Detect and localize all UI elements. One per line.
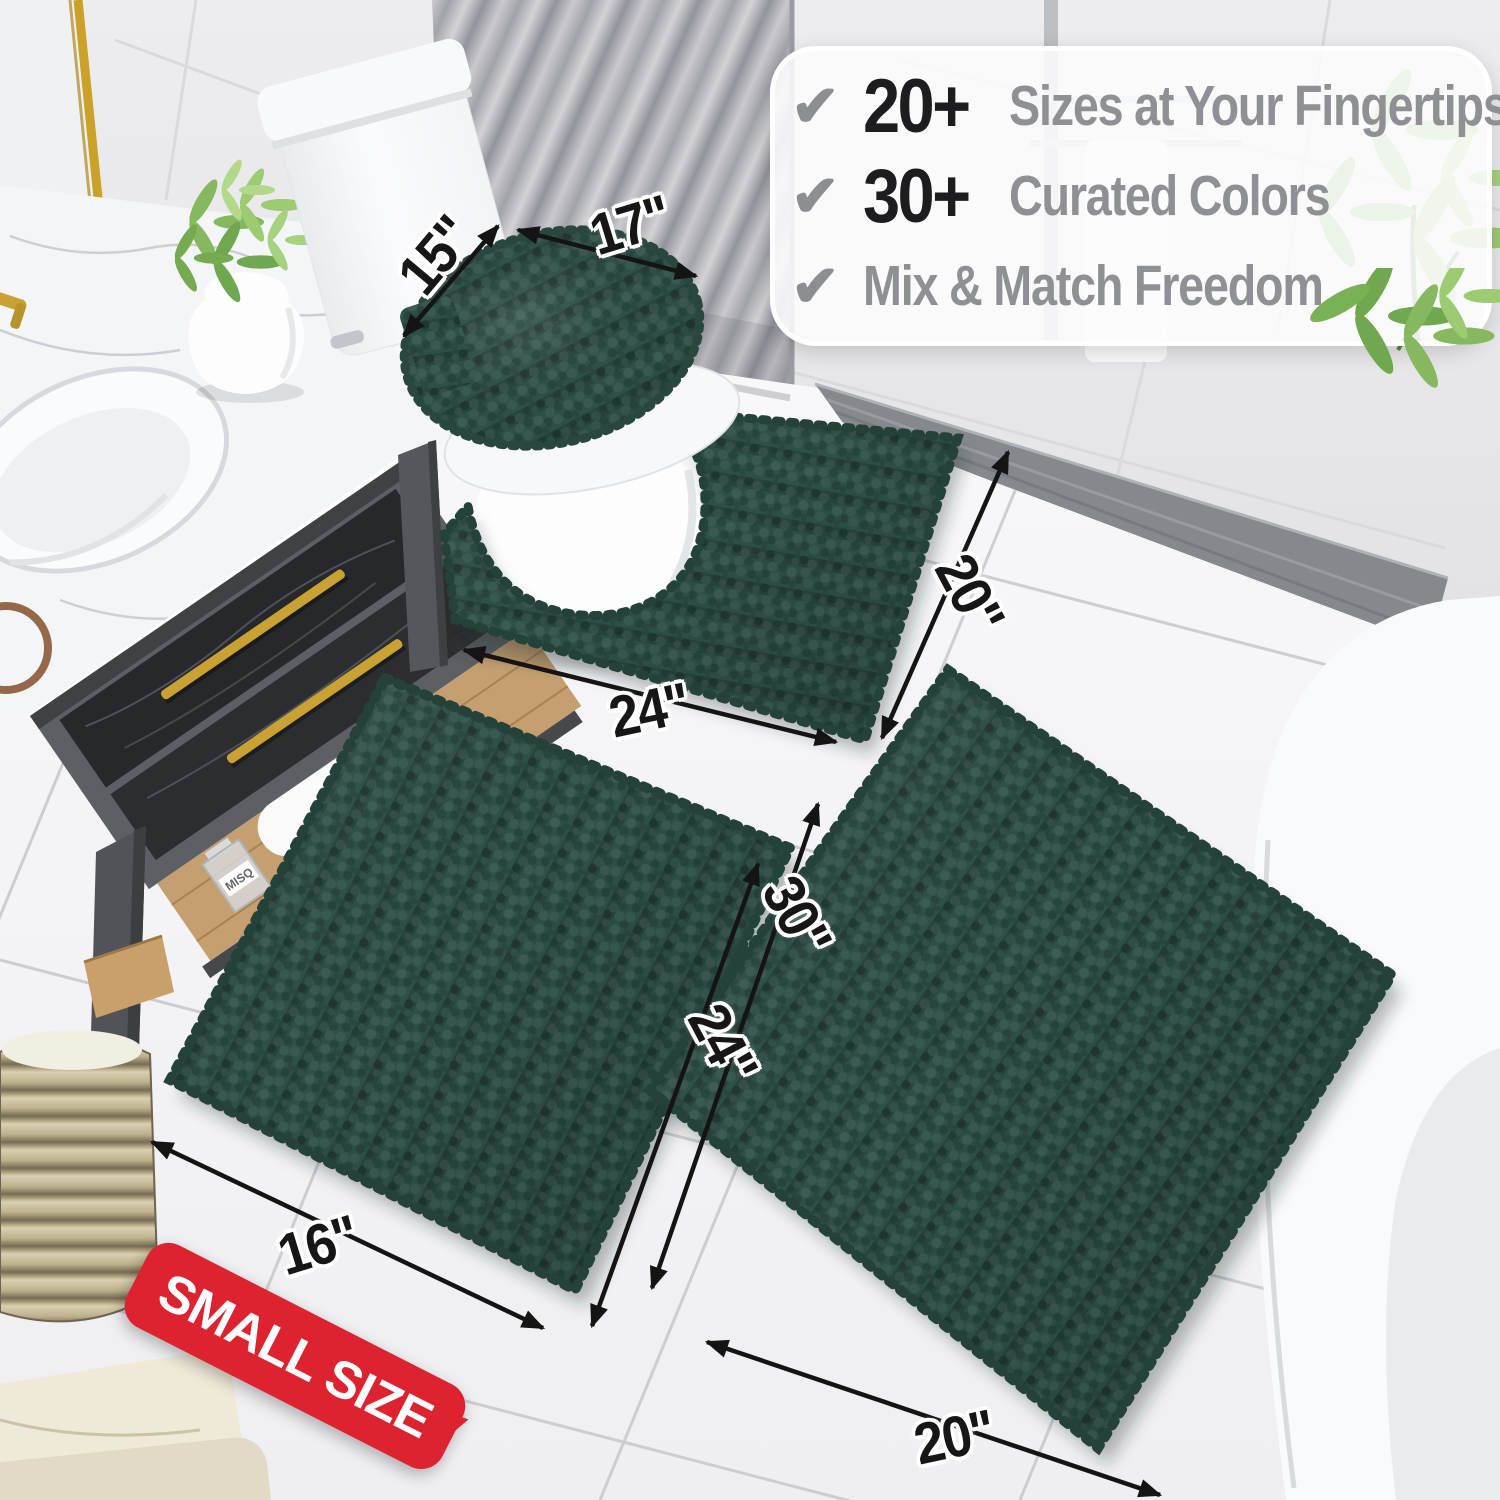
plant-front-leaves (1290, 268, 1500, 408)
woven-basket (0, 1030, 158, 1321)
dim-label-24in-contour: 24" (604, 674, 693, 747)
feature-value: 20+ (863, 63, 991, 150)
check-icon: ✔ (791, 252, 863, 320)
dim-label-20in-large: 20" (909, 1401, 998, 1474)
feature-row: ✔ 20+ Sizes at Your Fingertips (791, 62, 1487, 150)
feature-label: Sizes at Your Fingertips (1009, 73, 1500, 139)
feature-row: ✔ 30+ Curated Colors (791, 152, 1487, 240)
check-icon: ✔ (791, 72, 863, 140)
product-image: MISQ (0, 0, 1500, 1500)
feature-label: Mix & Match Freedom (863, 253, 1323, 319)
feature-value: 30+ (863, 153, 991, 240)
check-icon: ✔ (791, 162, 863, 230)
feature-label: Curated Colors (1009, 163, 1329, 229)
